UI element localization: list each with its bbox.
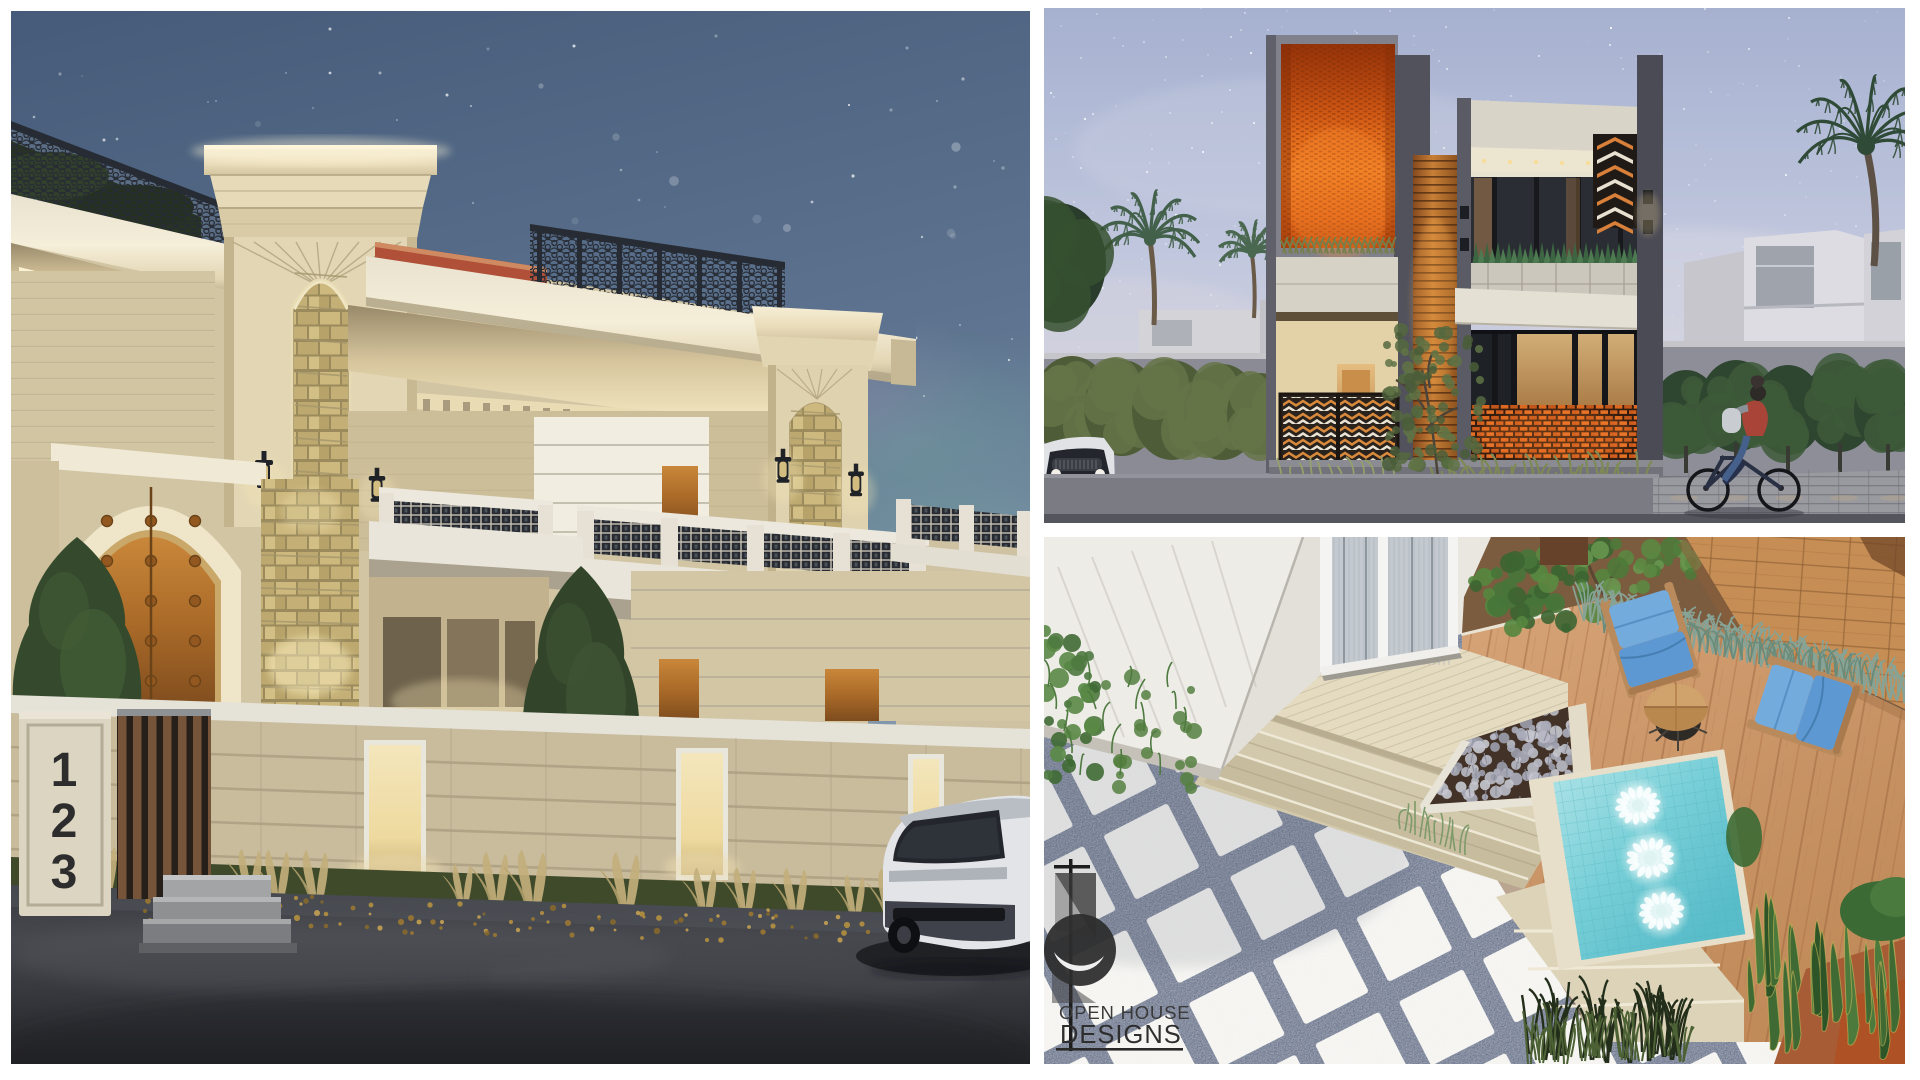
- svg-text:OPEN HOUSE: OPEN HOUSE: [1059, 1002, 1190, 1023]
- svg-text:2: 2: [51, 795, 78, 848]
- svg-text:1: 1: [51, 744, 78, 797]
- svg-text:DESIGNS: DESIGNS: [1060, 1021, 1182, 1049]
- svg-text:3: 3: [51, 846, 78, 899]
